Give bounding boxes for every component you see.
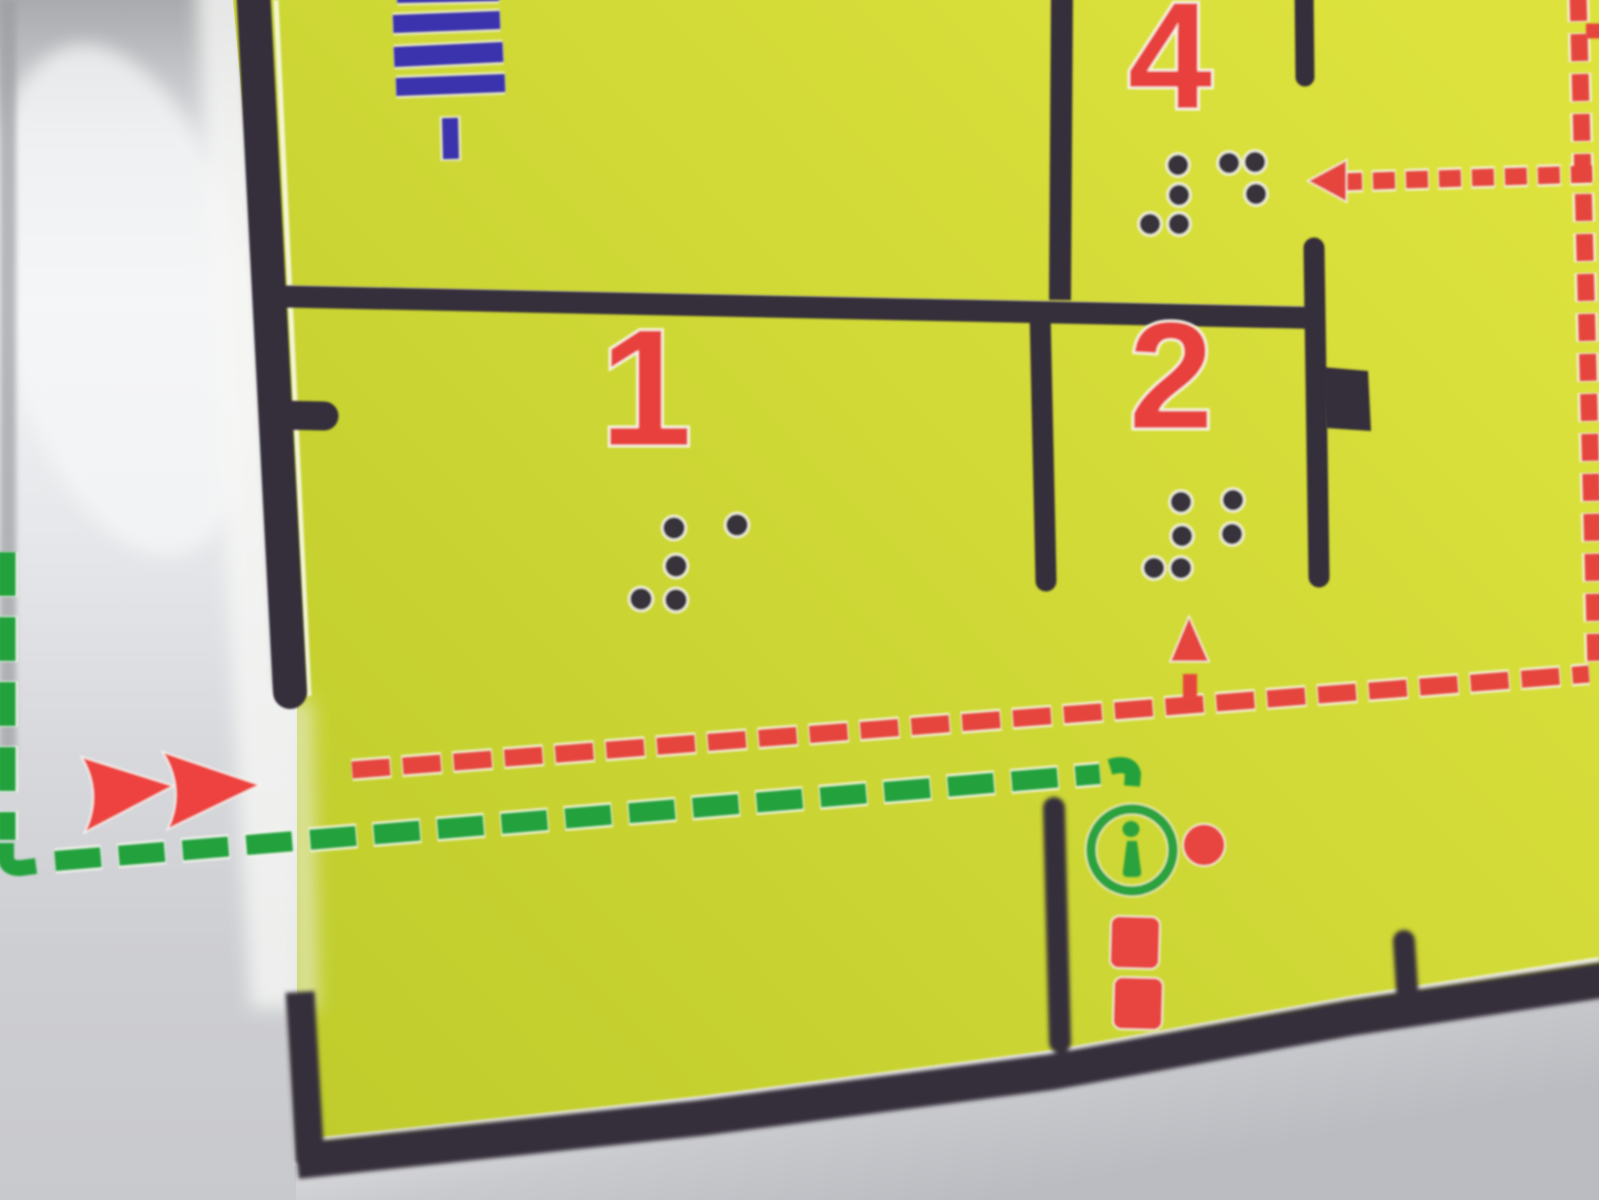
svg-text:4: 4 [1128,0,1213,141]
svg-text:2: 2 [1129,291,1214,461]
svg-text:1: 1 [600,296,692,481]
